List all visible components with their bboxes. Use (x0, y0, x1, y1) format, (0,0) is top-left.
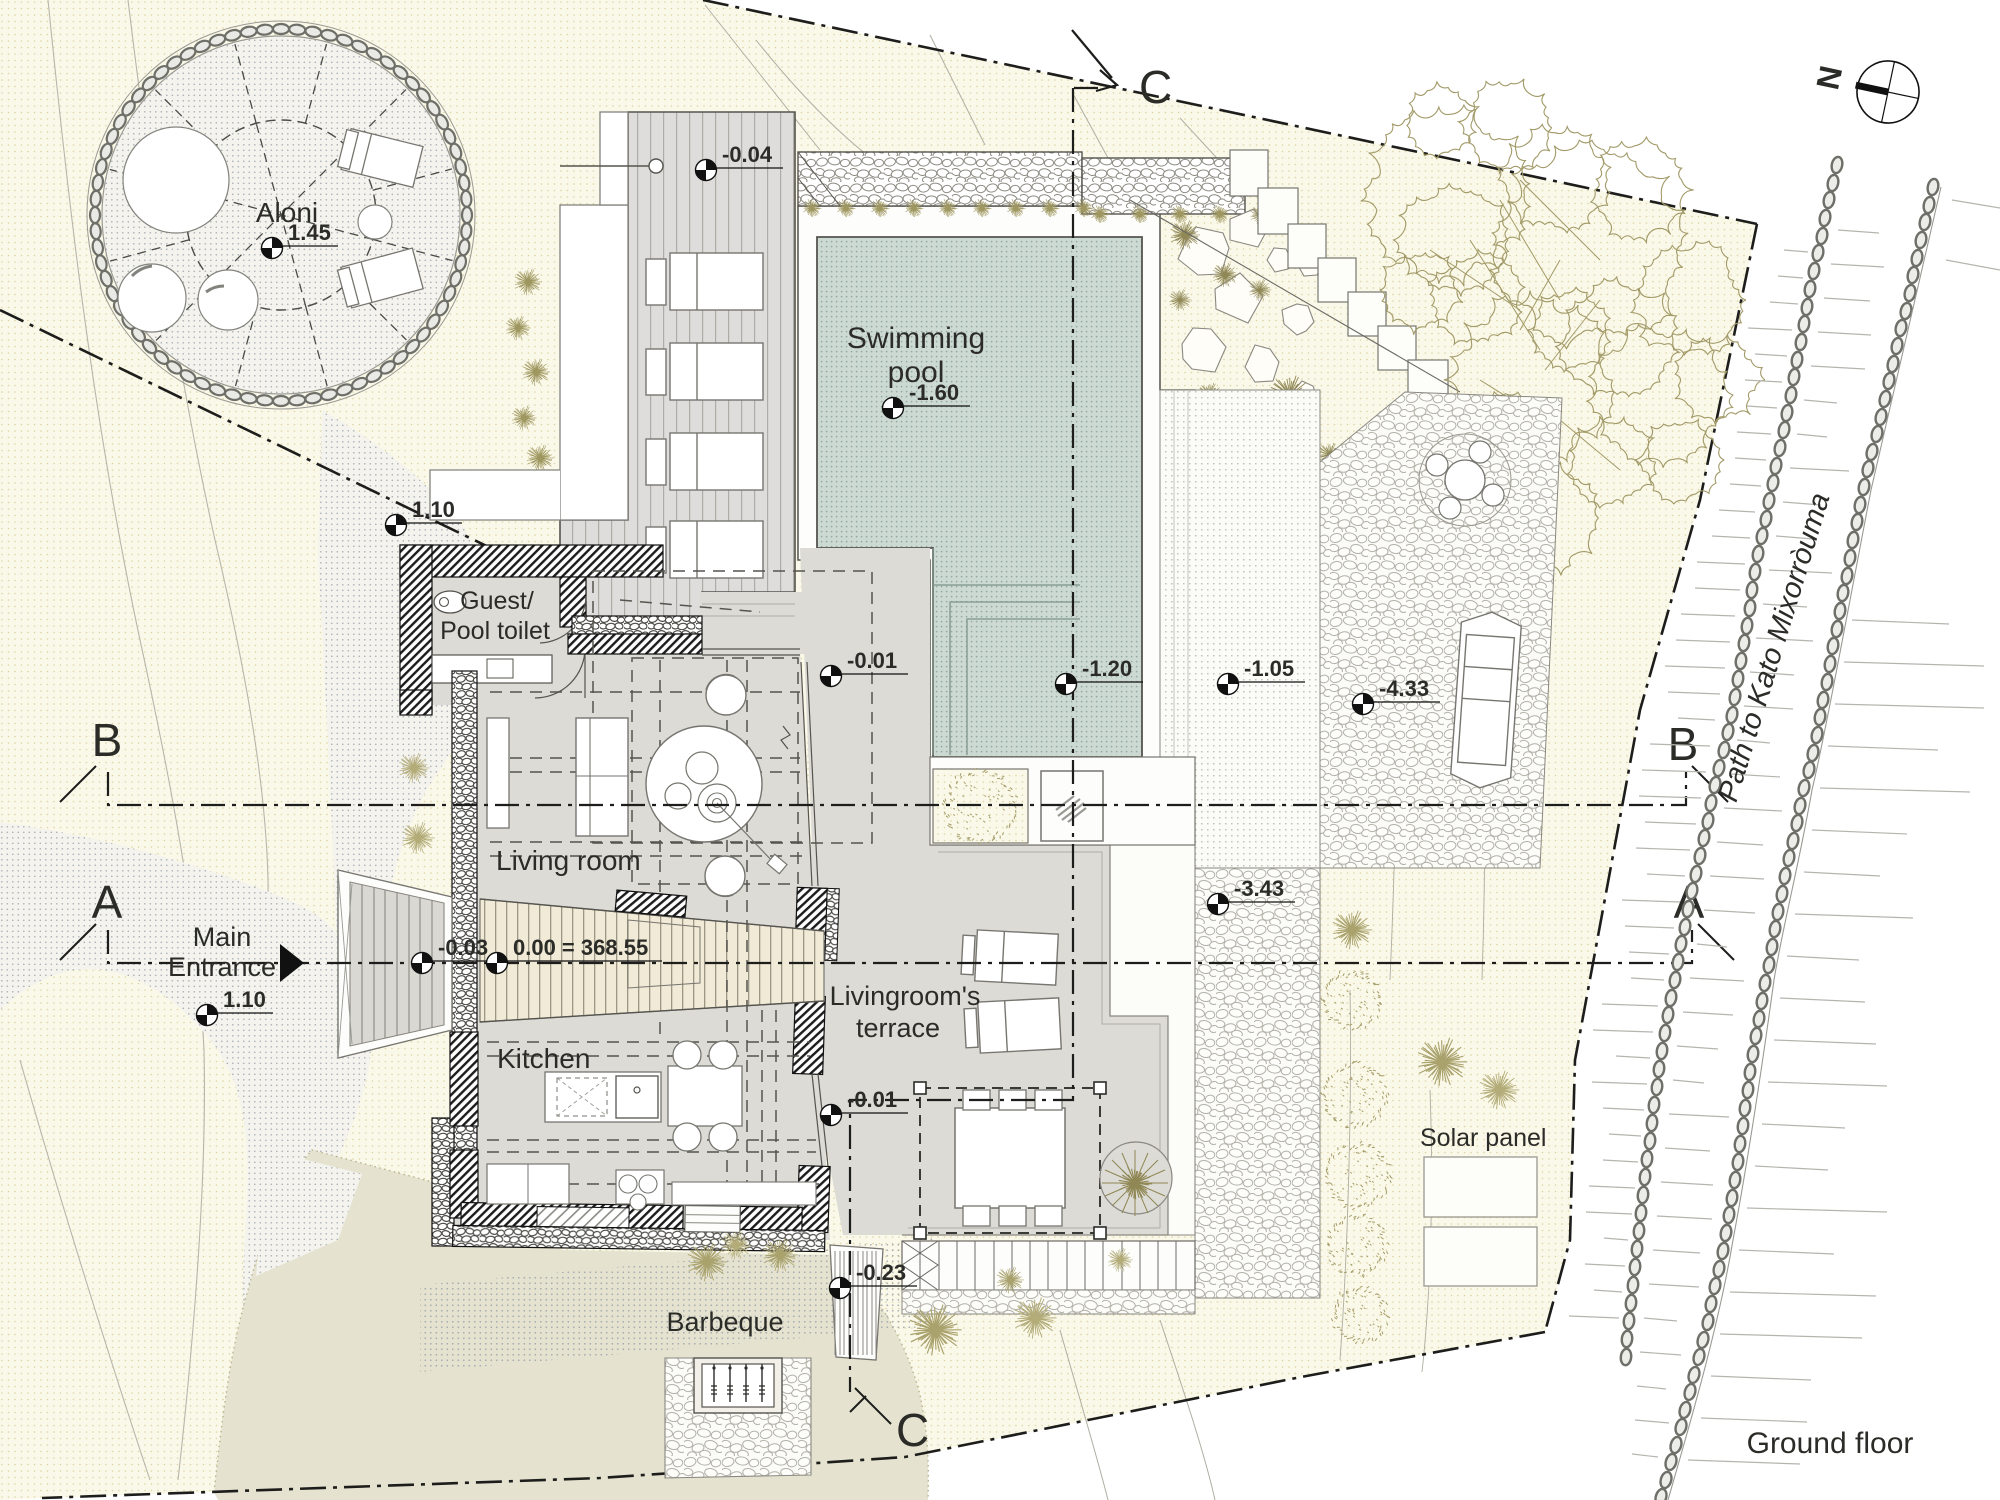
svg-text:Kitchen: Kitchen (497, 1043, 590, 1074)
svg-text:Main: Main (193, 922, 252, 952)
svg-text:C: C (1139, 61, 1172, 113)
svg-text:Swimming: Swimming (847, 322, 985, 355)
svg-text:B: B (92, 714, 123, 766)
svg-text:-1.05: -1.05 (1244, 656, 1294, 681)
svg-text:Entrance: Entrance (168, 952, 276, 982)
svg-text:-1.20: -1.20 (1082, 656, 1132, 681)
svg-text:-0.01: -0.01 (847, 1087, 897, 1112)
svg-text:-4.33: -4.33 (1379, 676, 1429, 701)
svg-text:C: C (896, 1404, 929, 1456)
svg-text:-3.43: -3.43 (1234, 876, 1284, 901)
svg-text:Guest/: Guest/ (460, 587, 534, 615)
svg-text:Barbeque: Barbeque (666, 1307, 783, 1337)
svg-text:1.45: 1.45 (288, 220, 331, 245)
svg-text:0.00 = 368.55: 0.00 = 368.55 (513, 935, 648, 960)
svg-text:terrace: terrace (856, 1013, 940, 1043)
svg-text:-0.23: -0.23 (856, 1260, 906, 1285)
svg-text:Livingroom's: Livingroom's (830, 981, 981, 1011)
svg-text:Solar panel: Solar panel (1420, 1124, 1546, 1152)
svg-text:B: B (1668, 718, 1699, 770)
svg-text:1.10: 1.10 (223, 987, 266, 1012)
svg-text:1.10: 1.10 (412, 497, 455, 522)
svg-text:-1.60: -1.60 (909, 380, 959, 405)
svg-text:A: A (92, 876, 123, 928)
svg-text:Pool toilet: Pool toilet (440, 617, 550, 645)
svg-text:-0.03: -0.03 (438, 935, 488, 960)
svg-text:Living room: Living room (496, 845, 641, 876)
svg-text:Ground floor: Ground floor (1747, 1427, 1914, 1460)
svg-text:-0.04: -0.04 (722, 142, 773, 167)
svg-text:-0.01: -0.01 (847, 648, 897, 673)
